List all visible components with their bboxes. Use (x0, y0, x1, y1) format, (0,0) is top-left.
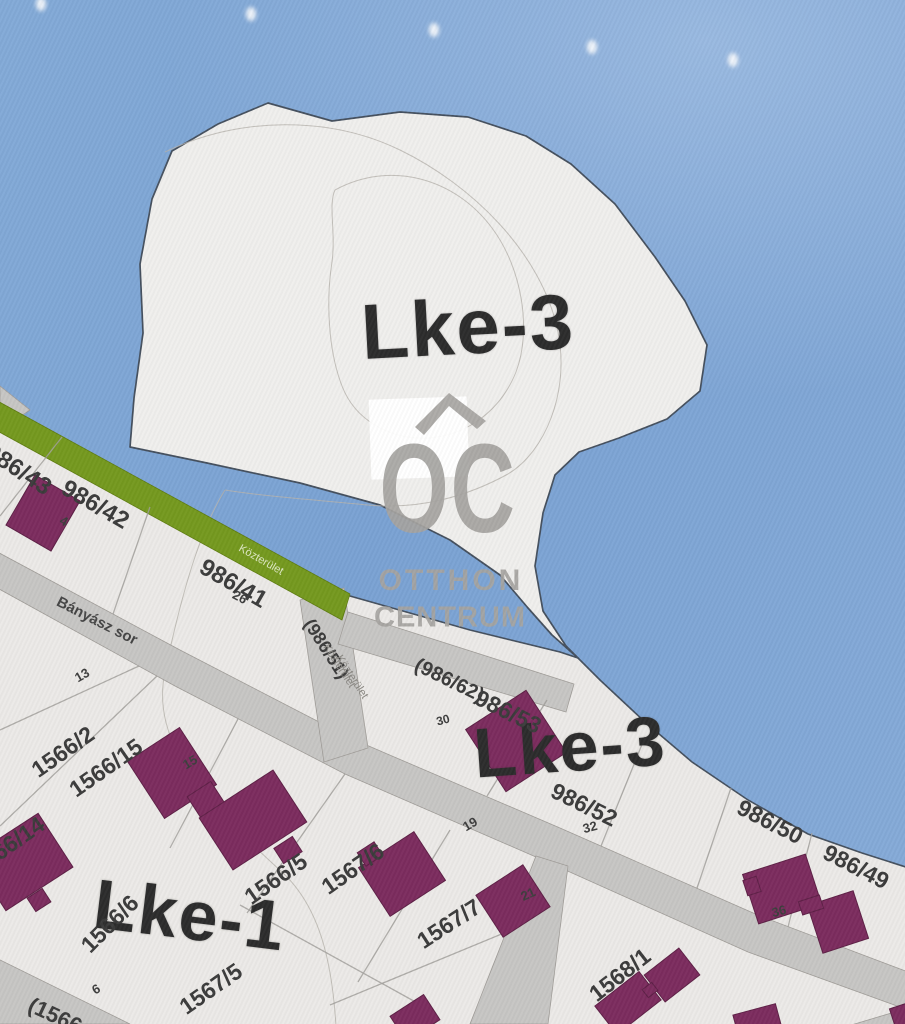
map-viewport[interactable]: OC OTTHON CENTRUM Lke-3 Lke-3 Lke-1 986/… (0, 0, 905, 1024)
zoning-map-canvas (0, 0, 905, 1024)
